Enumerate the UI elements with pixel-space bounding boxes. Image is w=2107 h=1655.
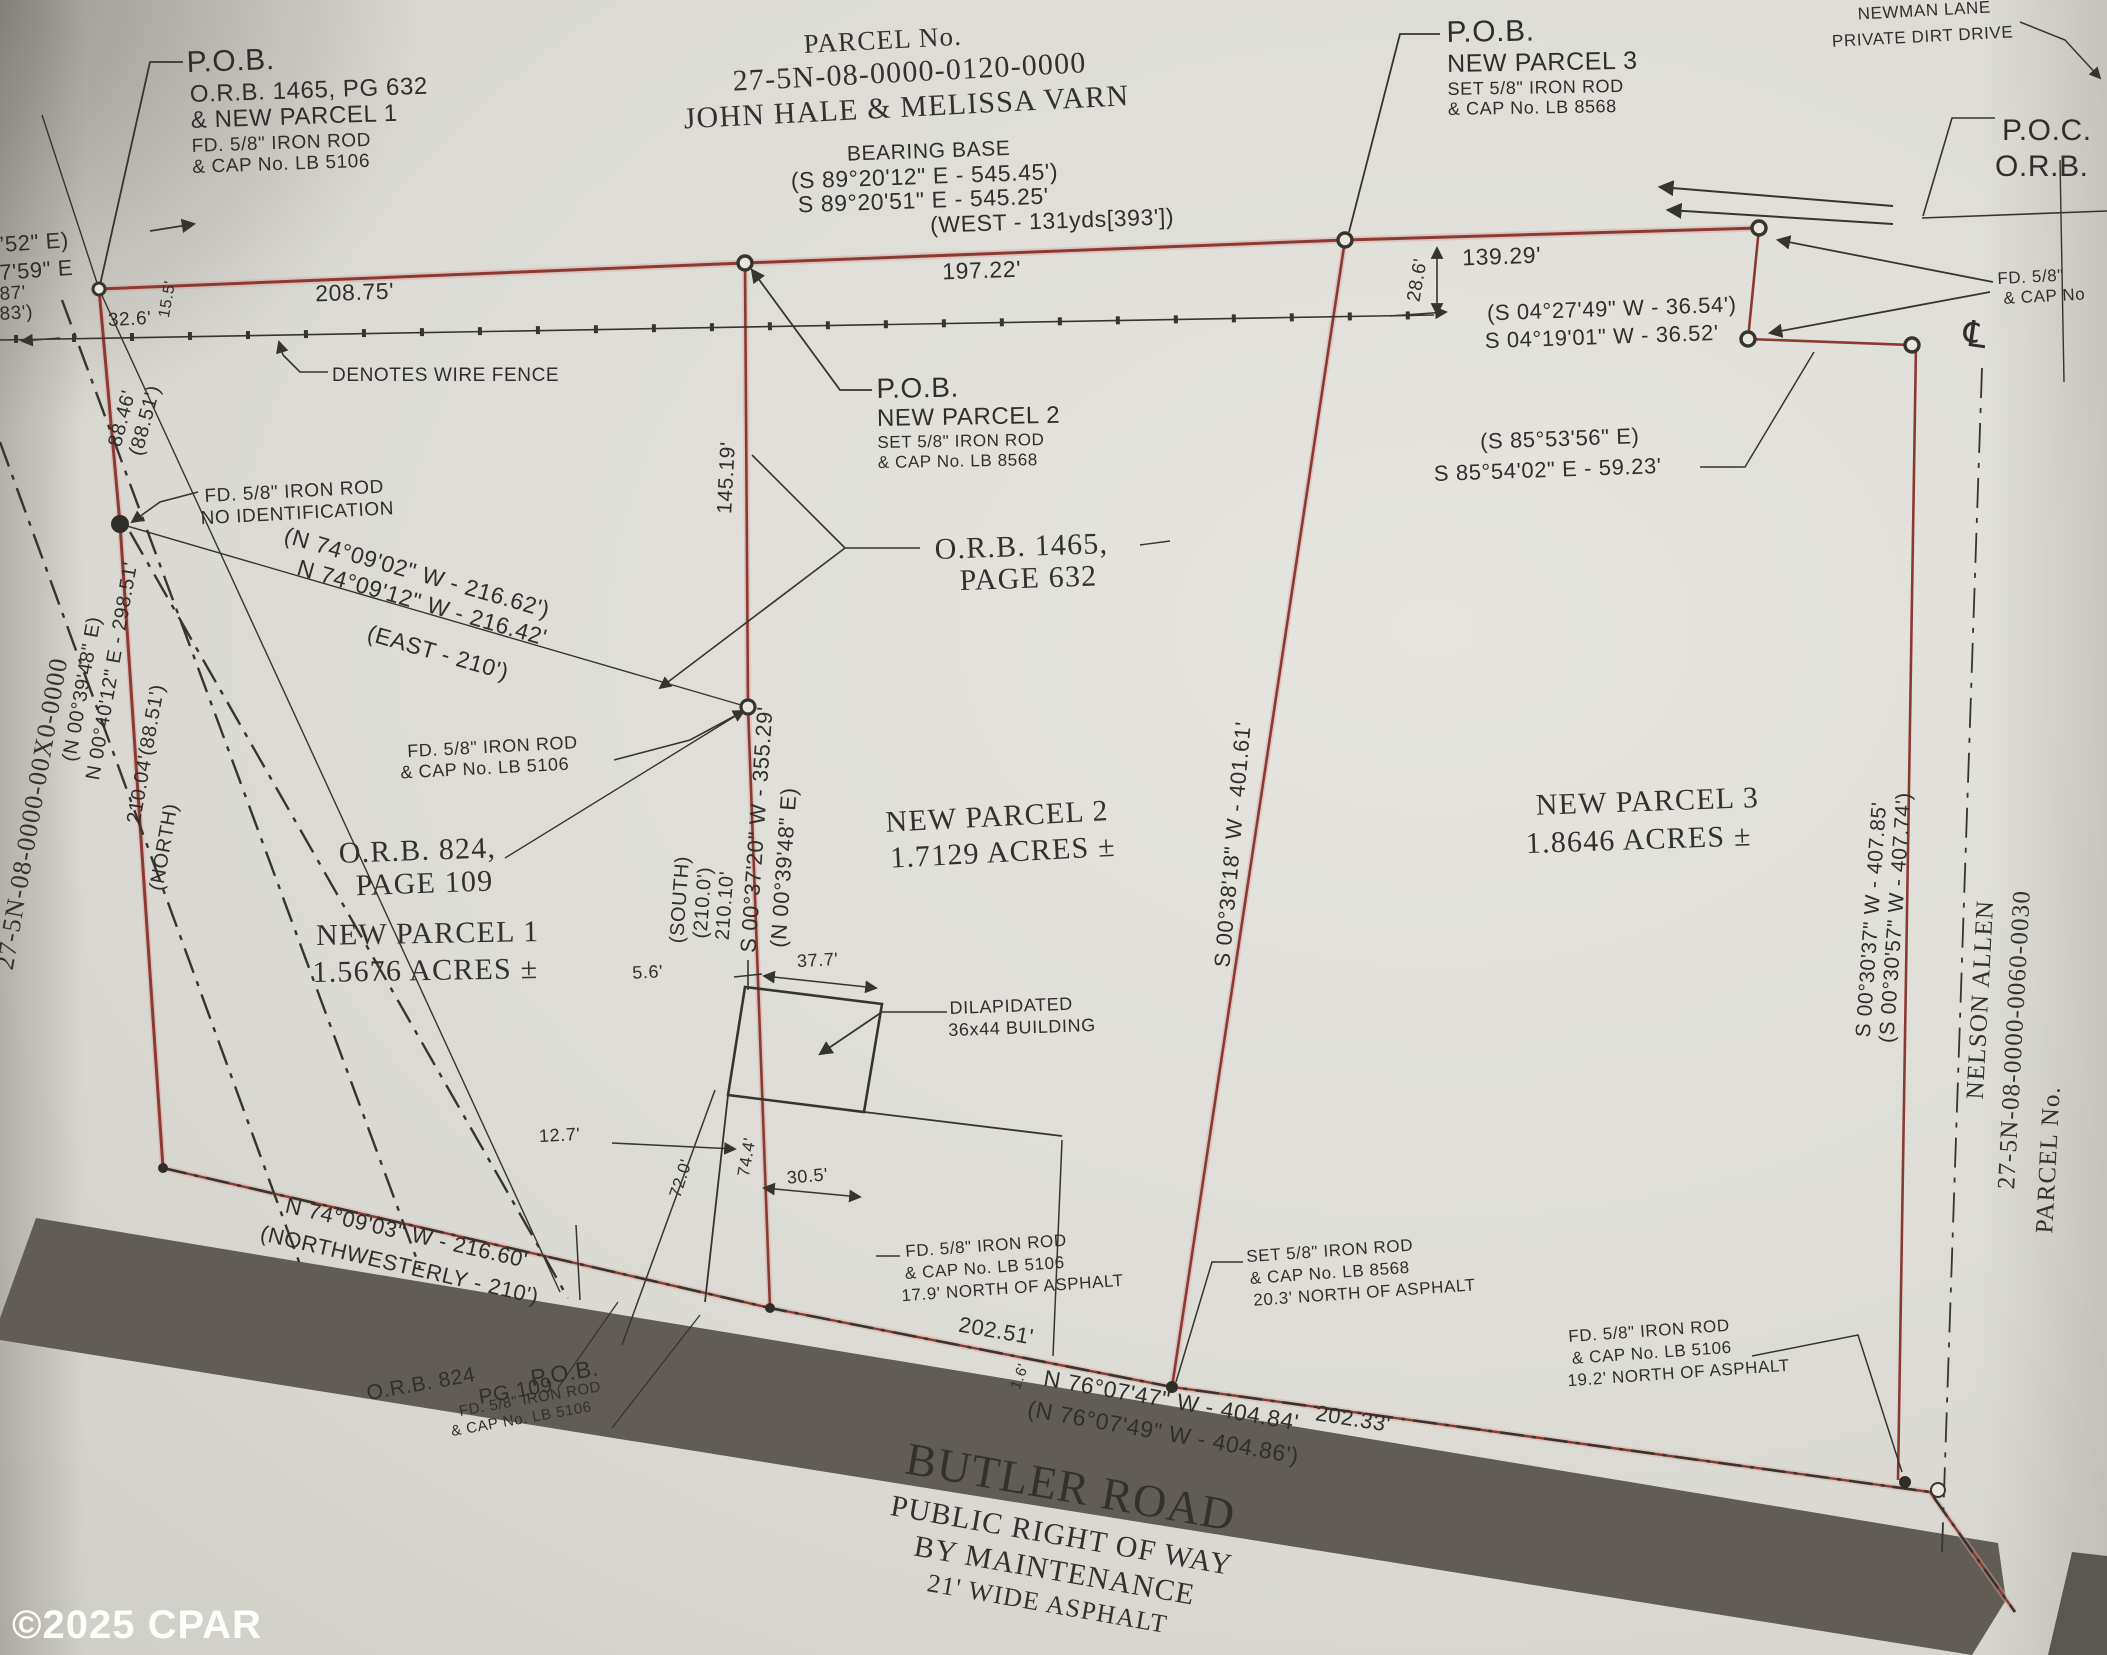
parcel1-area: 1.5676 ACRES ± — [312, 952, 538, 989]
fence-note-arrow — [279, 342, 283, 355]
plat-drawing: P.O.B. O.R.B. 1465, PG 632 & NEW PARCEL … — [0, 0, 2107, 1655]
orb-1465-block: O.R.B. 1465, PAGE 632 — [934, 527, 1110, 598]
node-nw-corner — [93, 283, 105, 295]
mid-rod-block: FD. 5/8" IRON ROD & CAP No. LB 5106 — [399, 732, 580, 782]
adjoiner-east-label: PARCEL No. — [2031, 1085, 2066, 1234]
dim-12-7: 12.7' — [538, 1124, 580, 1146]
northeast-jog — [1748, 228, 1912, 345]
fragment-4: 83') — [0, 302, 34, 325]
rod-19-2-block: FD. 5/8" IRON ROD & CAP No. LB 5106 19.2… — [1564, 1312, 1791, 1390]
fence-note-leader — [283, 355, 328, 372]
newman-line1: NEWMAN LANE — [1857, 0, 1991, 23]
dist-202-51: 202.51' — [957, 1312, 1036, 1350]
pob1-leader — [100, 62, 183, 285]
dist-139: 139.29' — [1462, 242, 1542, 271]
fragment-2: 7'59" E — [0, 255, 74, 285]
pob1-arrow — [150, 224, 194, 231]
parcel3-area: 1.8646 ACRES ± — [1525, 819, 1752, 860]
node-road-j1 — [765, 1303, 775, 1313]
corner-arrow-1 — [1660, 187, 1893, 206]
wire-fence-line — [0, 315, 1434, 340]
parcel3-label: NEW PARCEL 3 1.8646 ACRES ± — [1524, 781, 1761, 860]
shed-line-3 — [622, 1090, 715, 1345]
line1-record: (N 00°39'48" E) — [765, 786, 801, 948]
fence-legend: DENOTES WIRE FENCE — [332, 365, 559, 386]
fd-edge-line2: & CAP No — [2003, 285, 2086, 308]
dist-197: 197.22' — [942, 256, 1022, 285]
dim-72-0: 72.0' — [666, 1157, 696, 1200]
orb1465-leader-down — [660, 548, 845, 688]
adjoiner-west-number: 27-5N-08-0000-00X0-0000 — [0, 655, 73, 972]
node-jog-2 — [1905, 338, 1919, 352]
rod-20-3-block: SET 5/8" IRON ROD & CAP No. LB 8568 20.3… — [1246, 1231, 1477, 1310]
pob-parcel3-block: P.O.B. NEW PARCEL 3 SET 5/8" IRON ROD & … — [1446, 13, 1638, 119]
orb1465-line2: PAGE 632 — [959, 559, 1098, 597]
shed-line-2 — [705, 1095, 728, 1302]
newman-line2: PRIVATE DIRT DRIVE — [1831, 22, 2013, 50]
newman-lane-block: NEWMAN LANE PRIVATE DIRT DRIVE — [1830, 0, 2014, 51]
pob3-line4: & CAP No. LB 8568 — [1448, 96, 1617, 119]
poc-line2: O.R.B. — [1995, 150, 2089, 183]
parcel2-3-line — [1172, 240, 1345, 1387]
orb-824-block: O.R.B. 824, PAGE 109 — [338, 831, 498, 902]
dist-145: 145.19' — [713, 441, 740, 515]
pob3-leader — [1349, 34, 1440, 232]
pob2-line4: & CAP No. LB 8568 — [878, 450, 1038, 472]
dim-12-7-arrow — [612, 1143, 735, 1149]
dist-208: 208.75' — [315, 278, 395, 307]
fd-edge-line1: FD. 5/8" — [1997, 266, 2064, 288]
bearing-59-measured: S 85°54'02" E - 59.23' — [1433, 453, 1662, 486]
dilapidated-building — [728, 987, 882, 1112]
west-north: (NORTH) — [146, 802, 183, 893]
node-ne-corner — [1752, 221, 1766, 235]
pob3-line2: NEW PARCEL 3 — [1447, 47, 1638, 78]
node-pob-parcel3 — [1338, 233, 1352, 247]
pob2-line3: SET 5/8" IRON ROD — [877, 430, 1044, 452]
dist-202-33: 202.33' — [1314, 1400, 1393, 1437]
fd-right-edge-block: FD. 5/8" & CAP No — [1997, 265, 2086, 308]
fd-edge-arrow-1 — [1778, 240, 1993, 282]
north-tie-line — [1922, 211, 2107, 218]
parcel1-name: NEW PARCEL 1 — [316, 915, 540, 952]
dim-37-7: 37.7' — [796, 949, 838, 971]
orb824-line2: PAGE 109 — [355, 864, 494, 902]
parcel2-label: NEW PARCEL 2 1.7129 ACRES ± — [885, 794, 1117, 875]
node-road-end — [1931, 1483, 1945, 1497]
fd-edge-arrow-2 — [1770, 292, 1990, 333]
node-sw-corner — [158, 1163, 168, 1173]
mid-rod-leader — [614, 711, 744, 760]
dim-37-7-arrow — [764, 976, 876, 988]
adjoiner-east-owner: NELSON ALLEN — [1962, 899, 1999, 1100]
rod-17-9-block: FD. 5/8" IRON ROD & CAP No. LB 5106 17.9… — [898, 1227, 1125, 1305]
building-label: DILAPIDATED 36x44 BUILDING — [947, 993, 1096, 1040]
node-jog-1 — [1741, 332, 1755, 346]
building-line1: DILAPIDATED — [949, 994, 1073, 1018]
pob2-line2: NEW PARCEL 2 — [877, 402, 1061, 432]
parcel1-label: NEW PARCEL 1 1.5676 ACRES ± — [312, 915, 541, 989]
building-leader-arrow — [820, 1012, 882, 1054]
node-pob-parcel2 — [738, 256, 752, 270]
survey-plat-photo: P.O.B. O.R.B. 1465, PG 632 & NEW PARCEL … — [0, 0, 2107, 1655]
orb1465-dash — [1140, 541, 1170, 545]
building-line2: 36x44 BUILDING — [948, 1015, 1096, 1040]
watermark: ©2025 CPAR — [12, 1603, 262, 1647]
bearing-36-measured: S 04°19'01" W - 36.52' — [1484, 320, 1719, 353]
pob2-line1: P.O.B. — [876, 372, 959, 404]
pob1-line1: P.O.B. — [186, 43, 275, 79]
orb824-line1: O.R.B. 824, — [338, 831, 496, 869]
bearing-base-block: BEARING BASE (S 89°20'12" E - 545.45') S… — [790, 131, 1175, 242]
dim-30-5: 30.5' — [786, 1164, 829, 1188]
line1-210-10: 210.10' — [712, 870, 739, 941]
shed-line-1 — [864, 1112, 1062, 1136]
bearing-59-record: (S 85°53'56" E) — [1480, 423, 1640, 454]
orb1465-leader-up — [752, 455, 845, 548]
node-road-j3 — [1899, 1476, 1911, 1488]
parcel3-name: NEW PARCEL 3 — [1535, 781, 1759, 822]
node-noid-rod — [111, 515, 129, 533]
subject-parcel-title: PARCEL No. 27-5N-08-0000-0120-0000 JOHN … — [679, 12, 1130, 135]
dim-5-6: 5.6' — [632, 961, 664, 983]
dist-32: 32.6' — [107, 308, 152, 331]
adjoiner-east-number: 27-5N-08-0000-0060-0030 — [1993, 889, 2036, 1190]
corner-arrow-2 — [1668, 210, 1893, 224]
pob-parcel2-block: P.O.B. NEW PARCEL 2 SET 5/8" IRON ROD & … — [876, 370, 1061, 472]
fd192-leader — [1752, 1335, 1902, 1472]
dim-30-5-arrow — [764, 1188, 860, 1197]
poc-leader — [1923, 118, 1995, 216]
asphalt-corner-patch — [2048, 1552, 2107, 1655]
poc-line1: P.O.C. — [2002, 114, 2092, 147]
fragment-1: ’52" E) — [0, 227, 70, 257]
left-edge-fragments: ’52" E) 7'59" E 87' 83') — [0, 227, 74, 325]
pob3-line1: P.O.B. — [1446, 14, 1535, 49]
pob-parcel1-block: P.O.B. O.R.B. 1465, PG 632 & NEW PARCEL … — [186, 38, 431, 178]
noid-rod-block: FD. 5/8" IRON ROD NO IDENTIFICATION — [199, 476, 395, 529]
newman-leader — [2020, 22, 2100, 78]
centerline-symbol: ℄ — [1960, 312, 1990, 356]
poc-block: P.O.C. O.R.B. — [1995, 114, 2092, 183]
dim-74-4: 74.4' — [734, 1136, 760, 1178]
bearing59-leader — [1700, 352, 1814, 467]
dist-28: 28.6' — [1403, 257, 1431, 304]
line2-bearing: S 00°38'18" W - 401.61' — [1209, 720, 1255, 968]
